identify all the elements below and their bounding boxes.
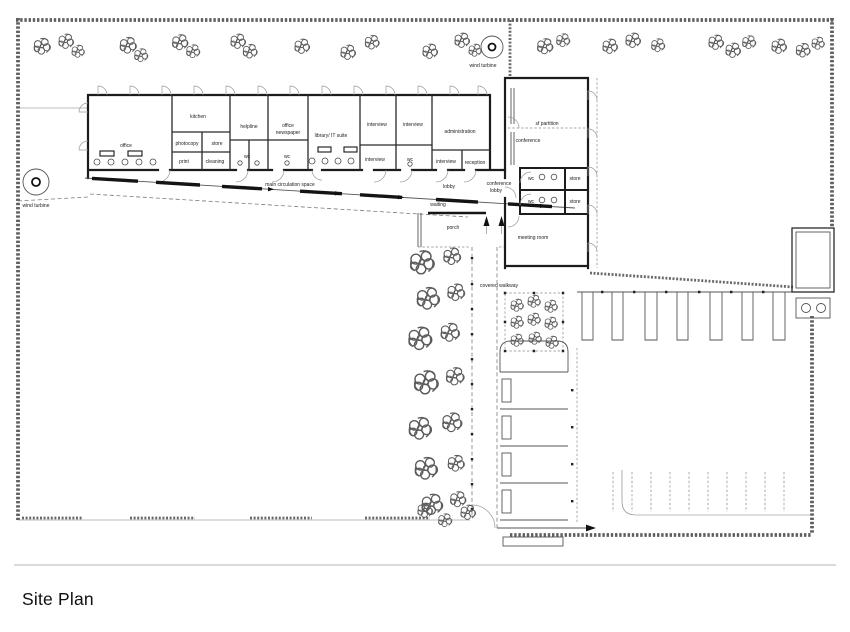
room-label-circulation: main circulation space	[265, 182, 315, 188]
tree-icon	[455, 33, 470, 47]
wheel-stop	[502, 490, 511, 513]
room-label-wc: wc	[528, 176, 535, 182]
tree-icon	[528, 295, 541, 307]
room-labels: office kitchen photocopy store print cle…	[120, 114, 581, 289]
tree-icon	[451, 492, 466, 507]
wind-turbine-north: wind turbine	[470, 36, 503, 69]
room-label-helpline: helpline	[240, 124, 257, 130]
room-label-wc: wc	[407, 157, 414, 163]
tree-icon	[603, 39, 618, 53]
tree-icon	[652, 39, 665, 52]
boundary-connector-dashed	[18, 197, 88, 201]
room-label-interview: interview	[403, 122, 423, 128]
road-direction-arrow-icon	[586, 525, 596, 532]
room-label-waiting: waiting	[430, 202, 446, 208]
porch-west-wall	[418, 213, 421, 247]
wc-fixtures	[238, 161, 412, 166]
room-label-lobby: lobby	[443, 184, 455, 190]
tree-icon	[545, 300, 558, 312]
library-table	[344, 147, 357, 152]
walkway-gate-arc	[472, 505, 495, 528]
wind-turbine-west: wind turbine	[23, 169, 50, 209]
tree-icon	[444, 248, 461, 265]
tree-icon	[626, 33, 641, 47]
tree-icon	[173, 35, 188, 50]
room-label-porch: porch	[447, 225, 460, 231]
room-label-wc: wc	[244, 154, 251, 160]
tree-icon	[411, 251, 435, 274]
tree-icon	[443, 413, 462, 432]
tree-icon	[469, 44, 482, 56]
tree-icon	[709, 35, 724, 49]
label-covered-walkway: covered walkway	[480, 283, 519, 289]
partition-track-mullions	[511, 88, 514, 165]
door-swing-arcs	[158, 170, 476, 182]
covered-walkway	[471, 247, 497, 528]
tree-icon	[231, 34, 246, 48]
eaves-dashed-line	[90, 194, 468, 217]
overflow-road-edge	[622, 470, 812, 515]
wind-turbine-label: wind turbine	[23, 203, 50, 209]
wc-fixtures	[539, 174, 557, 203]
planting-strips	[582, 292, 785, 340]
wing-exterior-walls	[88, 95, 505, 178]
tree-icon	[34, 38, 50, 54]
tree-grove	[504, 292, 564, 352]
tree-icon	[441, 323, 459, 341]
room-label-conference-lobby: conference	[487, 181, 512, 187]
room-label-store: store	[569, 199, 580, 205]
entrance-arrow-icon	[484, 216, 505, 226]
parking-middle	[497, 341, 596, 546]
tree-icon	[72, 45, 85, 57]
overflow-stall-lines	[613, 472, 784, 512]
hedge-parking-north	[590, 273, 793, 287]
tree-icon	[511, 334, 524, 346]
tree-icon	[796, 43, 810, 57]
room-label-library: library/ IT suite	[315, 133, 348, 139]
room-label-office: office	[120, 143, 132, 149]
tree-icon	[529, 332, 542, 344]
tree-icon	[511, 299, 524, 311]
parking-east	[577, 291, 793, 340]
room-label-store: store	[569, 176, 580, 182]
tree-icon	[461, 505, 476, 519]
window-swing-arcs-west	[79, 103, 88, 150]
room-label-photocopy: photocopy	[175, 141, 199, 147]
tree-icon	[726, 43, 741, 57]
wind-turbine-icon	[481, 36, 503, 58]
tree-icon	[446, 368, 464, 385]
wheel-stop	[502, 379, 511, 402]
wind-turbine-label: wind turbine	[470, 63, 497, 69]
tree-icon	[365, 35, 379, 49]
tree-icon	[448, 284, 465, 301]
room-label-administration: administration	[444, 129, 475, 135]
site-plan-sheet: wind turbine wind turbine	[0, 0, 850, 632]
outbuilding-east	[792, 228, 834, 318]
parking-bay-dividers	[500, 372, 568, 520]
tree-icon	[415, 371, 439, 394]
room-label-store: store	[211, 141, 222, 147]
outbuilding-outer-wall	[792, 228, 834, 292]
tree-icon	[812, 37, 825, 49]
window-swing-arcs-north	[98, 86, 487, 95]
tree-icon	[418, 503, 433, 517]
tank-circle	[817, 304, 826, 313]
room-label-conference: conference	[516, 138, 541, 144]
room-label-meeting-room: meeting room	[518, 235, 549, 241]
conference-window-arcs-east	[588, 91, 597, 252]
room-label-newspaper: newspaper	[276, 130, 301, 136]
tree-icon	[423, 44, 438, 58]
tree-icon	[772, 39, 787, 53]
tree-icon	[557, 34, 570, 47]
tree-icon	[448, 455, 464, 471]
wind-turbine-hub-icon	[32, 178, 40, 186]
room-label-interview: interview	[367, 122, 387, 128]
tree-icon	[743, 36, 756, 49]
conference-door-arcs	[505, 117, 531, 227]
tree-icon	[409, 418, 431, 440]
wheel-stop	[502, 453, 511, 476]
room-label-kitchen: kitchen	[190, 114, 206, 120]
tree-icon	[243, 44, 257, 58]
parking-overflow	[613, 470, 812, 515]
tree-icon	[417, 288, 439, 310]
outbuilding-inner-wall	[796, 232, 830, 288]
tree-icon	[415, 458, 437, 480]
tree-icon	[546, 336, 559, 348]
tree-icon	[511, 316, 524, 328]
tree-icon	[59, 34, 74, 48]
tree-icon	[341, 45, 356, 59]
tree-icon	[135, 49, 148, 62]
tank-circle	[802, 304, 811, 313]
parking-turning-head	[500, 341, 568, 372]
wheel-stop	[502, 416, 511, 439]
room-label-conference-lobby2: lobby	[490, 188, 502, 194]
tree-icon	[538, 39, 553, 54]
room-label-wc: wc	[284, 154, 291, 160]
walkway-dashed-edges	[472, 247, 497, 528]
room-label-wc: wc	[528, 199, 535, 205]
tree-band-west	[409, 248, 476, 527]
entrance-area	[418, 213, 505, 247]
tree-icon	[545, 317, 558, 329]
wind-turbine-hub-icon	[489, 44, 496, 51]
office-table	[128, 151, 142, 156]
tree-icon	[409, 327, 432, 349]
library-table	[318, 147, 331, 152]
tree-icon	[120, 37, 136, 53]
site-plan-drawing: wind turbine wind turbine	[0, 0, 850, 632]
tree-icon	[295, 39, 310, 53]
tree-icon	[187, 45, 200, 58]
tree-row-top	[34, 33, 824, 62]
office-table	[100, 151, 114, 156]
tree-icon	[528, 313, 541, 325]
wind-turbine-icon	[23, 169, 49, 195]
room-label-reception: reception	[465, 160, 486, 166]
speed-bump	[503, 537, 563, 546]
room-label-interview: interview	[365, 157, 385, 163]
drawing-title: Site Plan	[22, 589, 94, 610]
room-label-print: print	[179, 159, 189, 165]
room-label-sf-partition: sf partition	[535, 121, 558, 127]
room-label-cleaning: cleaning	[206, 159, 225, 165]
room-label-office2: office	[282, 123, 294, 129]
room-label-interview: interview	[436, 159, 456, 165]
bay-end-dots	[571, 389, 573, 502]
